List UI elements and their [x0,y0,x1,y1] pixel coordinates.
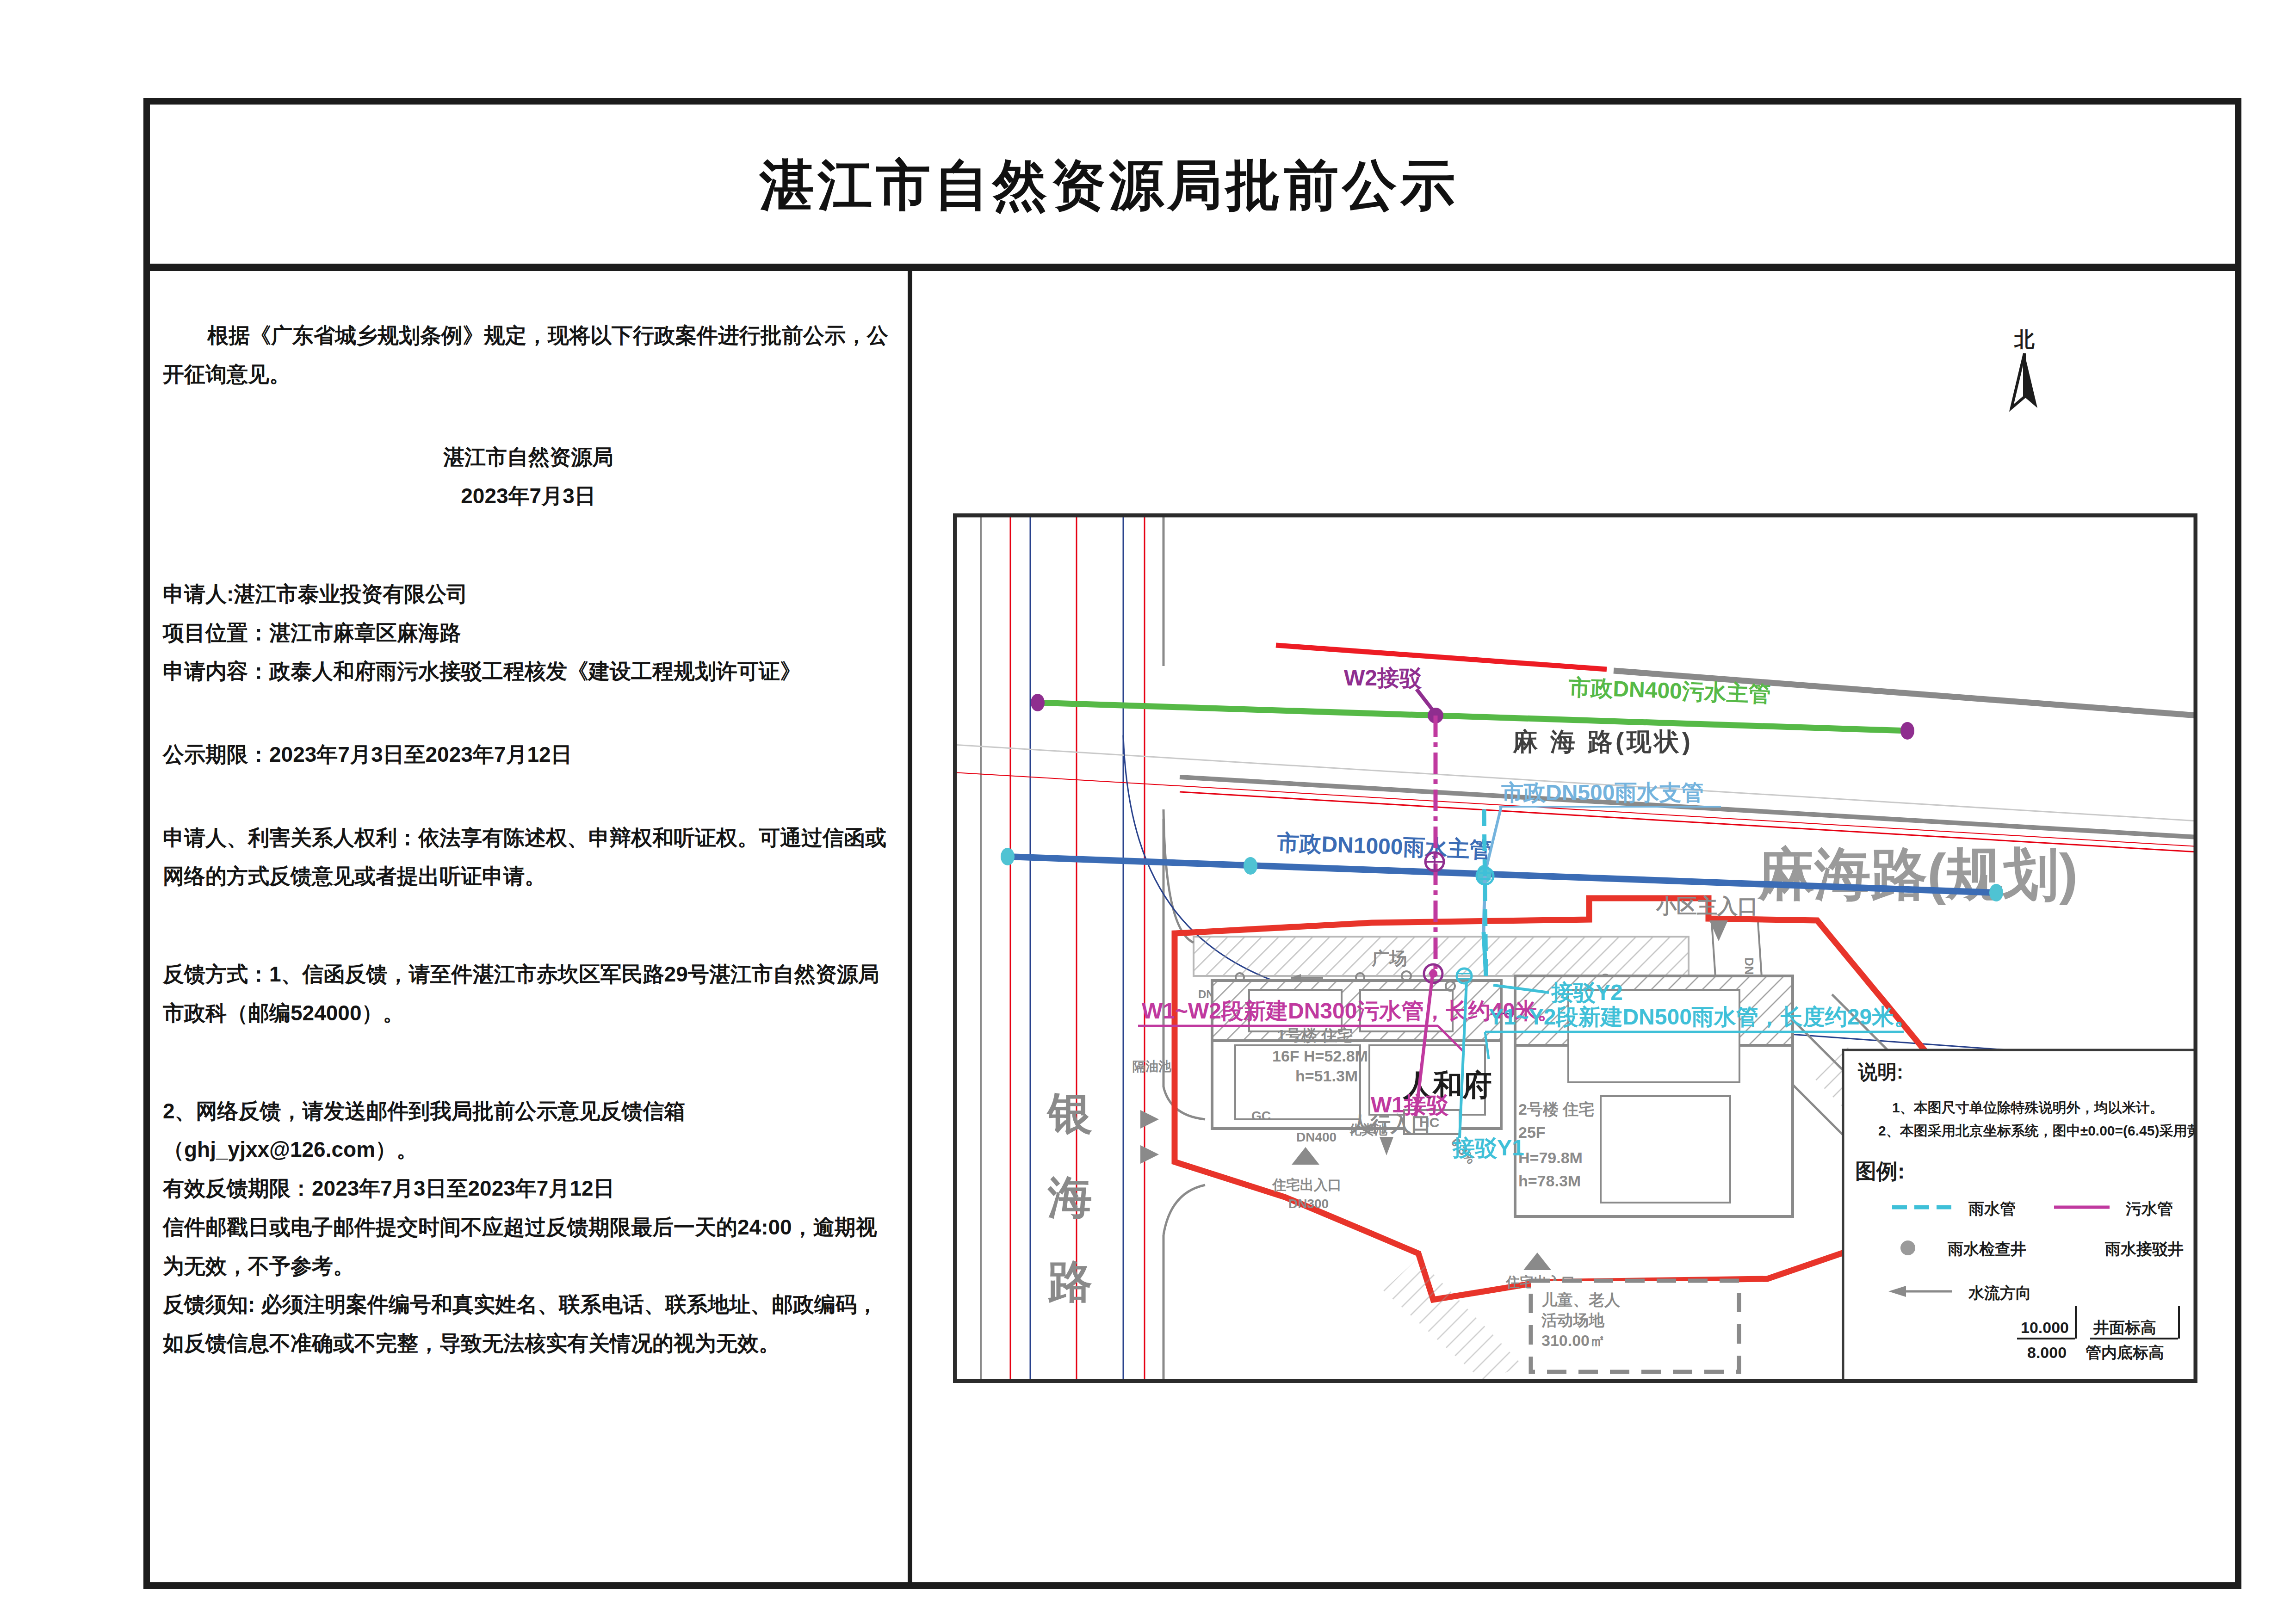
title-band: 湛江市自然资源局批前公示 [150,105,2235,267]
page-title: 湛江市自然资源局批前公示 [760,149,1459,223]
notice-feedback-mail: 反馈方式：1、信函反馈，请至件湛江市赤坎区军民路29号湛江市自然资源局市政科（邮… [163,955,894,1032]
legend-tuli-title: 图例: [1855,1159,1905,1183]
activity-ground-box: 儿童、老人 活动场地 310.00㎡ [1531,1281,1739,1372]
notice-intro: 根据《广东省城乡规划条例》规定，现将以下行政案件进行批前公示，公开征询意见。 [163,316,894,394]
legend-elev-top-label: 井面标高 [2093,1319,2156,1336]
legend-rain-well-label: 雨水检查井 [1947,1240,2026,1258]
vehicle-entrance-arrow-2 [1140,1145,1159,1164]
legend-rain-pipe-label: 雨水管 [1968,1200,2016,1217]
yinhai-char-1: 银 [1046,1088,1092,1138]
notice-applicant: 申请人:湛江市泰业投资有限公司 [163,575,894,614]
notice-valid-period: 有效反馈期限：2023年7月3日至2023年7月12日 [163,1169,894,1208]
vehicle-entrance-arrow-1 [1140,1110,1159,1129]
site-plan-map: DN400 DN800 0.3% DN400 广场 DN300 1号楼 住宅 1… [953,513,2197,1383]
notice-content: 申请内容：政泰人和府雨污水接驳工程核发《建设工程规划许可证》 [163,652,894,691]
vertical-road-yinhai [981,513,1205,1383]
legend-note-1: 1、本图尺寸单位除特殊说明外，均以米计。 [1892,1100,2164,1115]
site-plan-svg: DN400 DN800 0.3% DN400 广场 DN300 1号楼 住宅 1… [953,513,2197,1383]
panel-divider [908,271,912,1589]
north-label: 北 [1997,329,2052,350]
building1-name: 1号楼 住宅 [1277,1026,1353,1044]
dn400-site-label: DN400 [1296,1130,1337,1144]
y1-connection-label: 接驳Y1 [1452,1135,1524,1160]
pedestrian-entrance-label: 人行入口 [1349,1112,1431,1135]
mahai-existing-label: 麻 海 路(现状) [1512,728,1693,755]
y2-connection-label: 接驳Y2 [1550,980,1623,1005]
plaza-label: 广场 [1371,949,1407,968]
title-separator [143,264,2241,271]
walkway-hatch [1383,1258,1522,1383]
legend-sewage-pipe-label: 污水管 [2125,1200,2173,1217]
legend-elev-top-value: 10.000 [2021,1319,2069,1336]
notice-location: 项目位置：湛江市麻章区麻海路 [163,614,894,653]
w2-connection: W2接驳 [1344,666,1436,714]
notice-feedback-online: 2、网络反馈，请发送邮件到我局批前公示意见反馈信箱（ghj_yjxx@126.c… [163,1092,894,1169]
residential-entrance-label-1: 住宅出入口 [1272,1177,1342,1192]
notice-deadline: 信件邮戳日或电子邮件提交时间不应超过反馈期限最后一天的24:00，逾期视为无效，… [163,1208,894,1285]
gc-label: GC [1251,1109,1271,1123]
legend-elev-bottom-value: 8.000 [2027,1344,2067,1361]
legend-rain-conn-well-label: 雨水接驳井 [2104,1240,2184,1258]
legend-flow-label: 水流方向 [1968,1284,2031,1302]
notice-rights: 申请人、利害关系人权利：依法享有陈述权、申辩权和听证权。可通过信函或网络的方式反… [163,819,894,896]
notice-feedback-notice: 反馈须知: 必须注明案件编号和真实姓名、联系电话、联系地址、邮政编码，如反馈信息… [163,1285,894,1363]
building1-elev: h=51.3M [1295,1067,1358,1085]
rain-branch-label: 市政DN500雨水支管 [1501,780,1703,805]
north-arrow-icon [1997,350,2052,414]
residential-entrance-arrow-2 [1523,1253,1551,1270]
yinhai-char-3: 路 [1047,1257,1092,1306]
building2-elev: h=78.3M [1518,1172,1581,1190]
sewage-main-pipe [1031,694,1914,740]
pedestrian-entrance-arrow [1380,1137,1393,1155]
yinhai-road-label: 银 海 路 [1046,1088,1092,1306]
w2-connection-label: W2接驳 [1344,666,1422,690]
notice-date: 2023年7月3日 [163,477,894,516]
building1-height: 16F H=52.8M [1272,1047,1368,1065]
legend-rain-well-symbol [1900,1240,1915,1255]
yinhai-char-2: 海 [1047,1173,1092,1222]
activity-line2: 活动场地 [1541,1311,1605,1329]
legend-shuoming-title: 说明: [1857,1061,1903,1083]
activity-line1: 儿童、老人 [1541,1291,1621,1308]
building2-height: H=79.8M [1518,1149,1583,1166]
legend-box: 说明: 1、本图尺寸单位除特殊说明外，均以米计。 2、本图采用北京坐标系统，图中… [1843,1050,2197,1381]
main-entrance-label: 小区主入口 [1655,895,1758,917]
mahai-planned-label: 麻海路(规划) [1757,843,2078,906]
dn300-entrance-label: DN300 [1288,1197,1329,1211]
notice-text-panel: 根据《广东省城乡规划条例》规定，现将以下行政案件进行批前公示，公开征询意见。 湛… [163,287,894,1363]
notice-agency: 湛江市自然资源局 [163,438,894,477]
notice-period: 公示期限：2023年7月3日至2023年7月12日 [163,735,894,774]
activity-line3: 310.00㎡ [1541,1332,1605,1349]
north-compass: 北 [1997,329,2052,417]
rain-main-label: 市政DN1000雨水主管 [1276,830,1492,862]
legend-elev-bottom-label: 管内底标高 [2085,1344,2164,1361]
geyouchi-label: 隔油池 [1133,1059,1171,1074]
new-rain-label: Y1~Y2段新建DN500雨水管，长度约29米。 [1489,1005,1916,1029]
building2-name: 2号楼 住宅 [1518,1100,1594,1118]
residential-entrance-arrow-1 [1292,1147,1319,1165]
legend-note-2: 2、本图采用北京坐标系统，图中±0.00=(6.45)采用黄海高程系统。 [1878,1123,2197,1138]
